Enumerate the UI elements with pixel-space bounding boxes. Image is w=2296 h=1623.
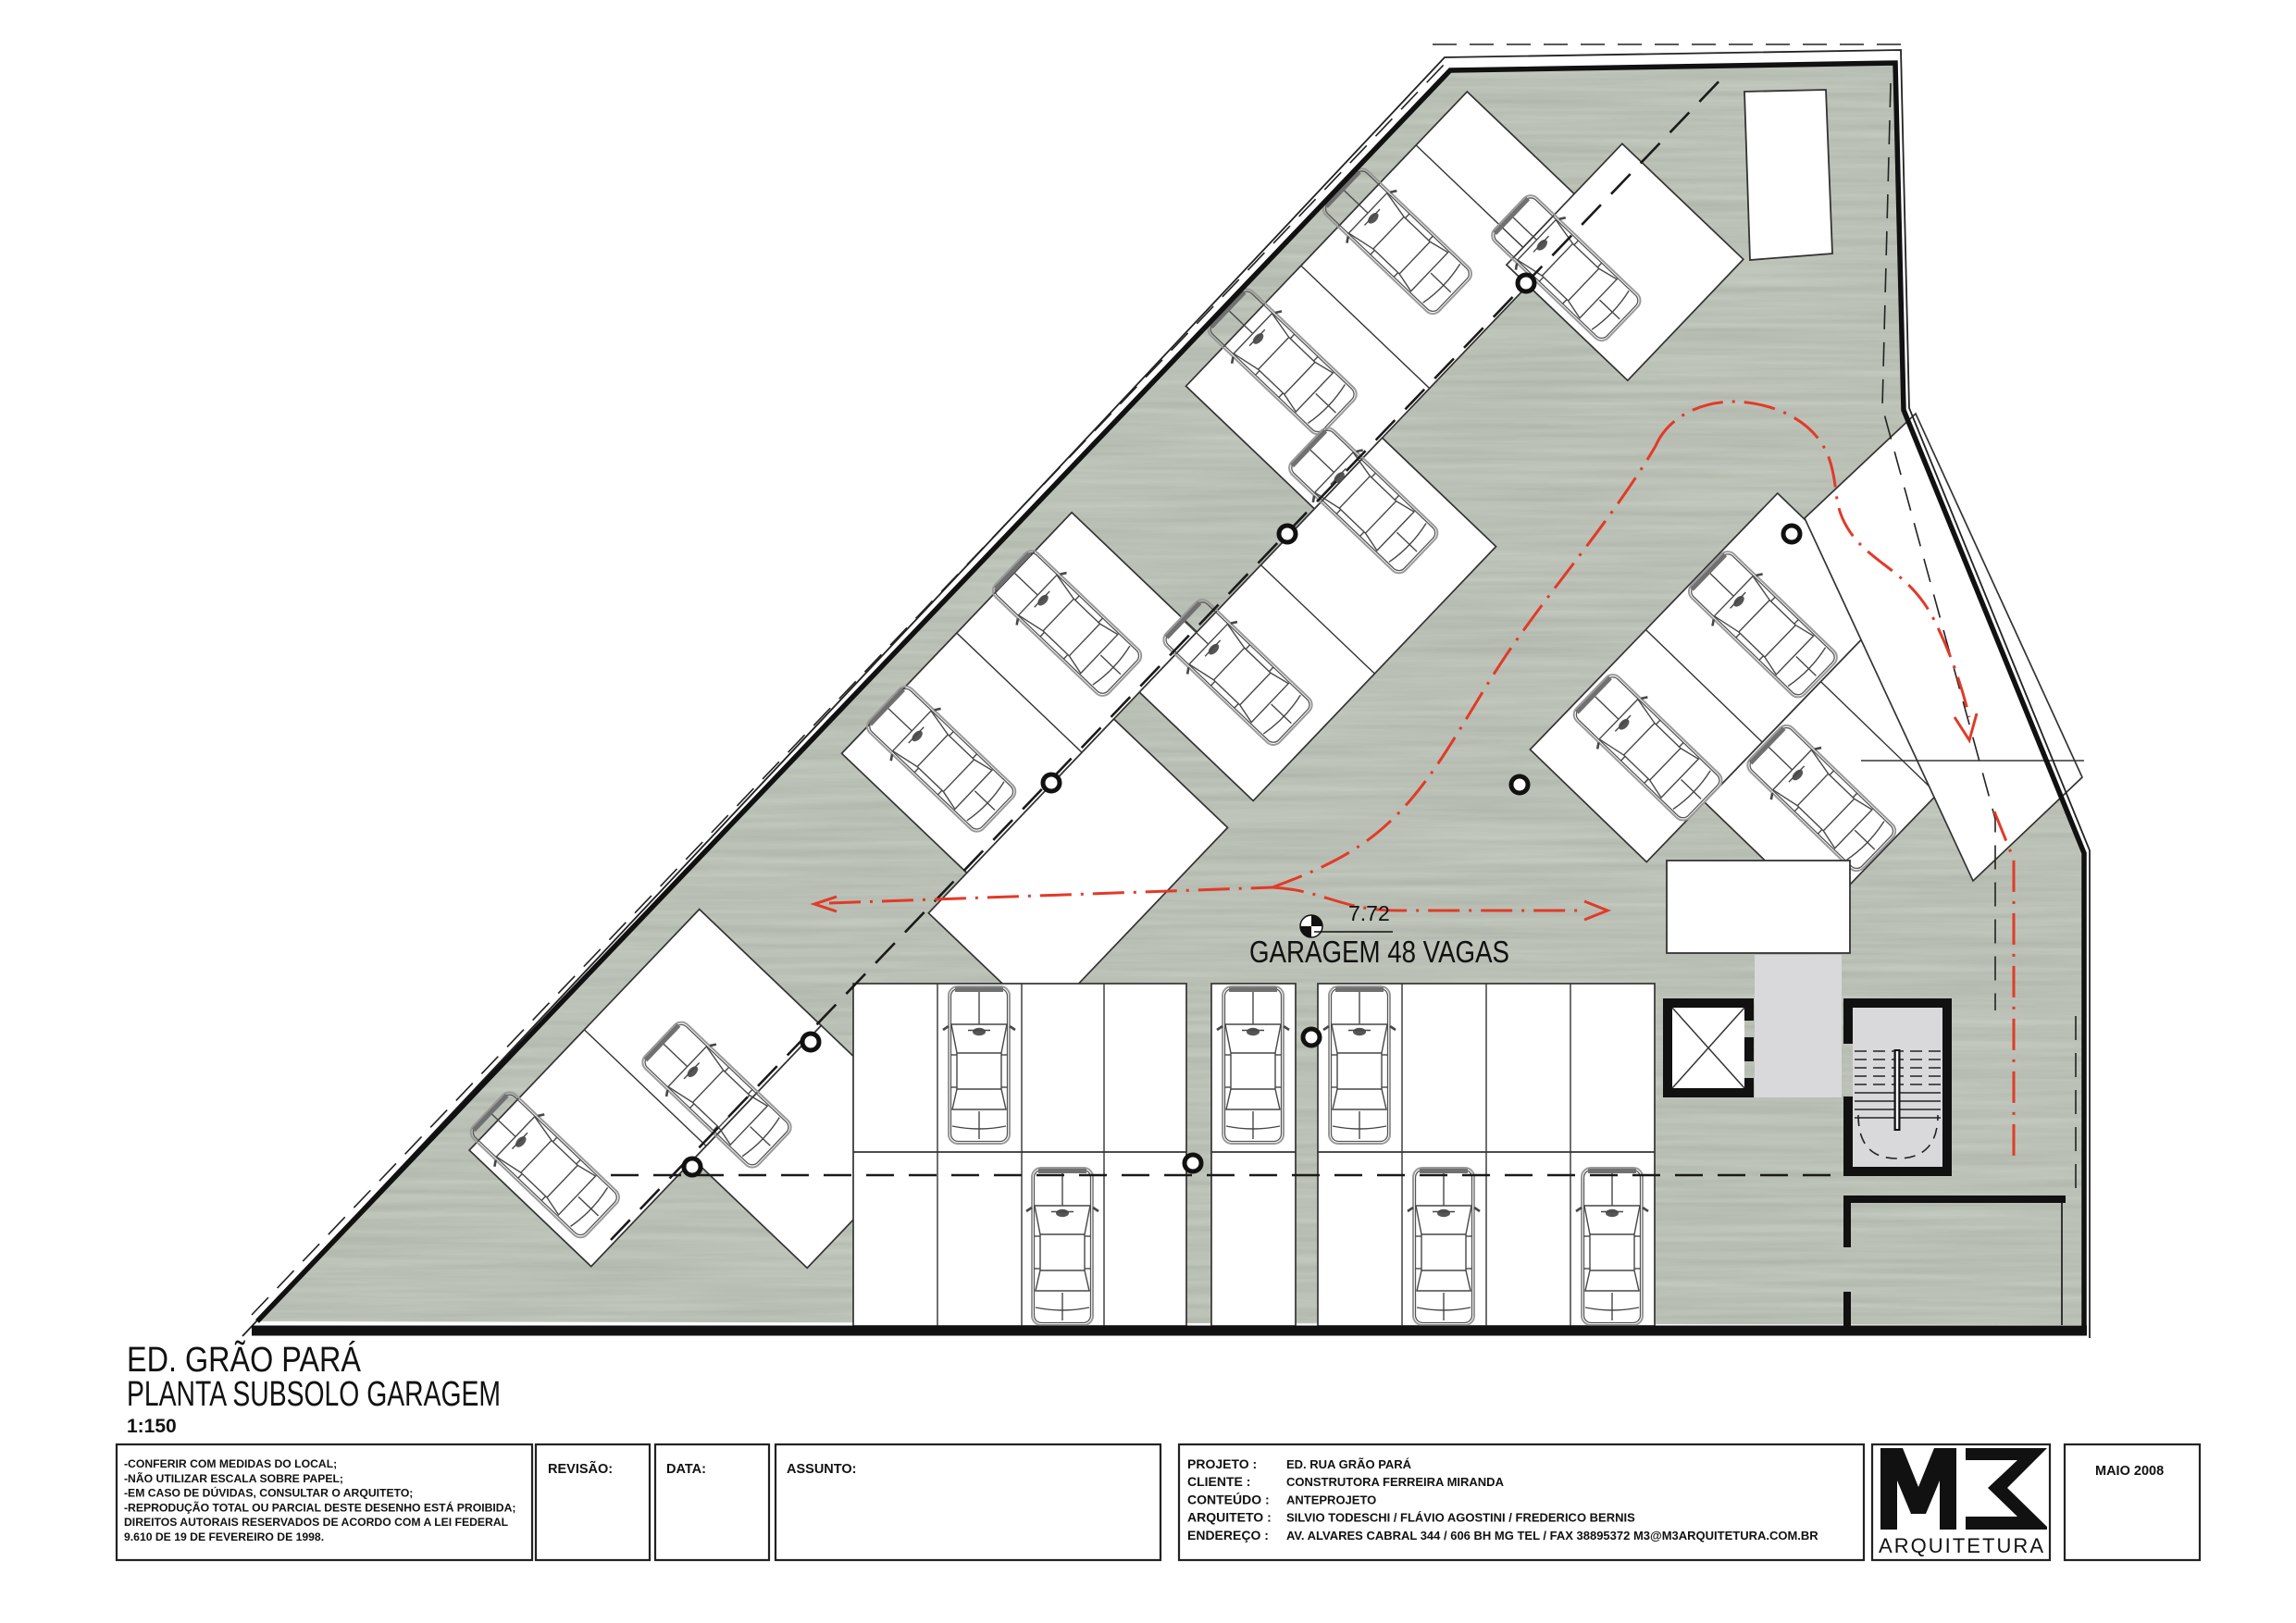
svg-text:-NÃO UTILIZAR ESCALA SOBRE PAP: -NÃO UTILIZAR ESCALA SOBRE PAPEL; xyxy=(124,1471,343,1485)
svg-text:CONTEÚDO :: CONTEÚDO : xyxy=(1187,1491,1270,1506)
svg-text:CONSTRUTORA FERREIRA MIRANDA: CONSTRUTORA FERREIRA MIRANDA xyxy=(1286,1475,1505,1489)
svg-text:PROJETO :: PROJETO : xyxy=(1187,1456,1257,1471)
svg-text:REVISÃO:: REVISÃO: xyxy=(548,1460,613,1477)
svg-text:PLANTA SUBSOLO GARAGEM: PLANTA SUBSOLO GARAGEM xyxy=(127,1375,501,1414)
svg-text:CLIENTE :: CLIENTE : xyxy=(1187,1474,1250,1489)
svg-text:7.72: 7.72 xyxy=(1348,901,1390,925)
svg-text:DATA:: DATA: xyxy=(666,1462,706,1477)
svg-text:ANTEPROJETO: ANTEPROJETO xyxy=(1286,1493,1376,1506)
svg-text:SILVIO TODESCHI / FLÁVIO AGOST: SILVIO TODESCHI / FLÁVIO AGOSTINI / FRED… xyxy=(1286,1511,1635,1525)
svg-text:9.610 DE 19 DE FEVEREIRO DE 19: 9.610 DE 19 DE FEVEREIRO DE 1998. xyxy=(124,1530,324,1543)
svg-text:ARQUITETURA: ARQUITETURA xyxy=(1879,1534,2043,1557)
svg-text:-REPRODUÇÃO TOTAL OU PARCIAL D: -REPRODUÇÃO TOTAL OU PARCIAL DESTE DESEN… xyxy=(124,1500,515,1514)
svg-text:ENDEREÇO :: ENDEREÇO : xyxy=(1187,1528,1269,1542)
svg-text:ASSUNTO:: ASSUNTO: xyxy=(787,1462,856,1477)
svg-text:-EM CASO DE DÚVIDAS, CONSULTAR: -EM CASO DE DÚVIDAS, CONSULTAR O ARQUITE… xyxy=(124,1486,413,1500)
svg-text:ARQUITETO :: ARQUITETO : xyxy=(1187,1510,1272,1525)
svg-text:DIREITOS AUTORAIS RESERVADOS D: DIREITOS AUTORAIS RESERVADOS DE ACORDO C… xyxy=(124,1516,509,1529)
svg-text:ED. GRÃO PARÁ: ED. GRÃO PARÁ xyxy=(127,1340,362,1380)
svg-text:-CONFERIR COM MEDIDAS DO LOCAL: -CONFERIR COM MEDIDAS DO LOCAL; xyxy=(124,1457,337,1470)
svg-text:MAIO 2008: MAIO 2008 xyxy=(2095,1464,2164,1479)
svg-text:ED. RUA GRÃO PARÁ: ED. RUA GRÃO PARÁ xyxy=(1286,1457,1412,1471)
svg-text:AV. ALVARES CABRAL 344 / 606 B: AV. ALVARES CABRAL 344 / 606 BH MG TEL /… xyxy=(1286,1529,1818,1542)
svg-text:GARAGEM 48 VAGAS: GARAGEM 48 VAGAS xyxy=(1249,935,1509,969)
svg-text:1:150: 1:150 xyxy=(127,1416,177,1437)
